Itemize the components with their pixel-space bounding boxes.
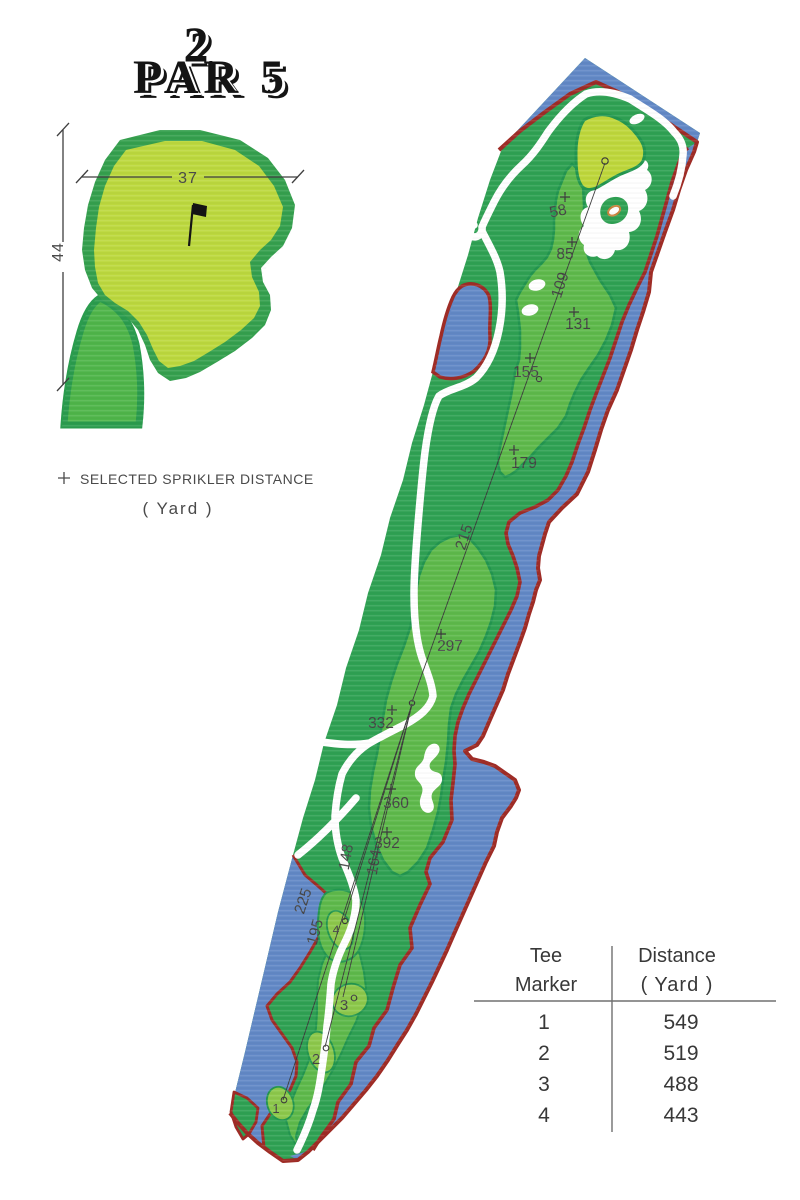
- svg-text:SELECTED SPRIKLER DISTANCE: SELECTED SPRIKLER DISTANCE: [80, 471, 314, 487]
- svg-text:( Yard ): ( Yard ): [641, 974, 714, 996]
- svg-text:443: 443: [663, 1104, 698, 1127]
- svg-text:2: 2: [538, 1042, 550, 1065]
- svg-text:PAR 5: PAR 5: [133, 51, 289, 104]
- svg-text:488: 488: [663, 1073, 698, 1096]
- svg-text:4: 4: [538, 1104, 550, 1127]
- svg-text:1: 1: [538, 1011, 550, 1034]
- svg-text:44: 44: [50, 242, 67, 262]
- svg-text:549: 549: [663, 1011, 698, 1034]
- svg-text:Marker: Marker: [515, 974, 578, 996]
- svg-text:37: 37: [178, 170, 198, 187]
- svg-text:3: 3: [538, 1073, 550, 1096]
- svg-text:Tee: Tee: [530, 945, 562, 967]
- svg-text:( Yard ): ( Yard ): [142, 499, 213, 518]
- svg-text:519: 519: [663, 1042, 698, 1065]
- svg-text:Distance: Distance: [638, 945, 716, 967]
